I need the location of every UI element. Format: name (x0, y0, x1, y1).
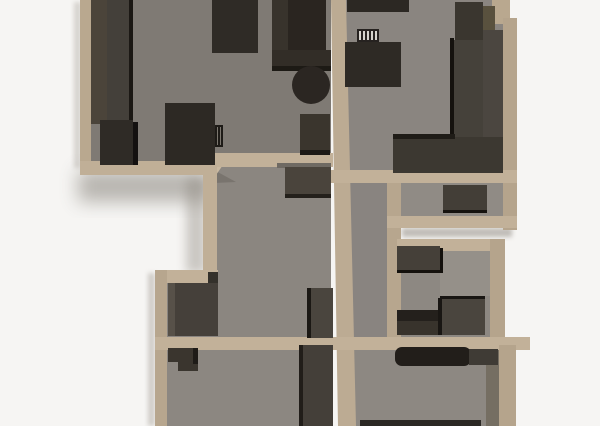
furniture-sofa-seat (288, 0, 326, 50)
furniture-tv-stand-edge (300, 150, 330, 155)
furniture-wardrobe-left-panel (91, 0, 107, 124)
furniture-fridge (455, 2, 483, 43)
furniture-round-table (292, 66, 330, 104)
wall-right-mid-bottom (387, 216, 517, 228)
furniture-closet-wardrobe-side (168, 283, 175, 336)
wall-lower-right-right (490, 239, 505, 350)
furniture-wardrobe-body (107, 0, 130, 124)
furniture-piano-key-4 (371, 31, 373, 40)
furniture-kitchen-top-cabinet (347, 0, 409, 12)
furniture-sideboard (100, 120, 133, 165)
furniture-dresser-right-mid (443, 185, 487, 212)
floorplan-svg (0, 0, 600, 426)
furniture-br-sofa-ext (469, 349, 498, 365)
wall-hall-left (203, 163, 217, 283)
furniture-lr-lowbox (397, 321, 442, 335)
wall-living-left (80, 0, 91, 175)
furniture-lr-dresser-edge-right (440, 248, 443, 273)
furniture-lr-box-edge-left (438, 298, 442, 335)
furniture-wardrobe-edge (129, 0, 133, 124)
wall-kitchen-right (503, 18, 517, 230)
furniture-piano-body (345, 42, 401, 87)
furniture-br-bottom-strip (360, 420, 481, 426)
furniture-corner-block (208, 272, 218, 283)
floor-lower-right-light (440, 250, 490, 296)
floorplan-canvas (0, 0, 600, 426)
furniture-closet-wardrobe (175, 283, 218, 336)
furniture-desk (165, 103, 215, 165)
furniture-counter-wood-top (483, 6, 495, 33)
furniture-lr-dresser-edge-bottom (397, 270, 443, 273)
furniture-shelf-hall (285, 167, 331, 198)
furniture-lr-box (440, 296, 485, 335)
furniture-desk-panel-line-1 (217, 127, 218, 145)
furniture-piano-key-3 (367, 31, 369, 40)
furniture-sofa-back (272, 0, 290, 57)
shadow-left-living-wall (74, 2, 81, 168)
wall-bottom-right-right (499, 345, 516, 426)
furniture-counter-arm-edge (393, 134, 455, 139)
furniture-cabinet-top (212, 0, 258, 53)
wall-bottom-long (155, 337, 530, 350)
furniture-wardrobe-hall (310, 288, 333, 338)
furniture-desk-panel-line-2 (220, 127, 221, 145)
furniture-lr-box-edge-top (440, 296, 485, 299)
furniture-counter-arm (393, 137, 503, 173)
furniture-wardrobe-hall-edge (307, 288, 311, 338)
shadow-right-gap (402, 228, 512, 237)
furniture-piano-key-2 (363, 31, 365, 40)
furniture-shelf-hall-edge (285, 194, 331, 198)
furniture-bl-box-edge (193, 348, 198, 364)
furniture-dresser-right-mid-edge (443, 210, 487, 213)
furniture-bl-column-edge (299, 345, 303, 426)
furniture-lr-dresser (397, 246, 440, 272)
shadow-left-bottom-block (148, 273, 155, 426)
furniture-tv-stand (300, 114, 330, 155)
furniture-br-sofa (395, 347, 471, 366)
furniture-sideboard-edge (133, 122, 138, 165)
furniture-bl-column (302, 345, 333, 426)
furniture-piano-key-1 (359, 31, 361, 40)
furniture-piano-key-5 (375, 31, 377, 40)
furniture-desk-panel (215, 125, 223, 147)
